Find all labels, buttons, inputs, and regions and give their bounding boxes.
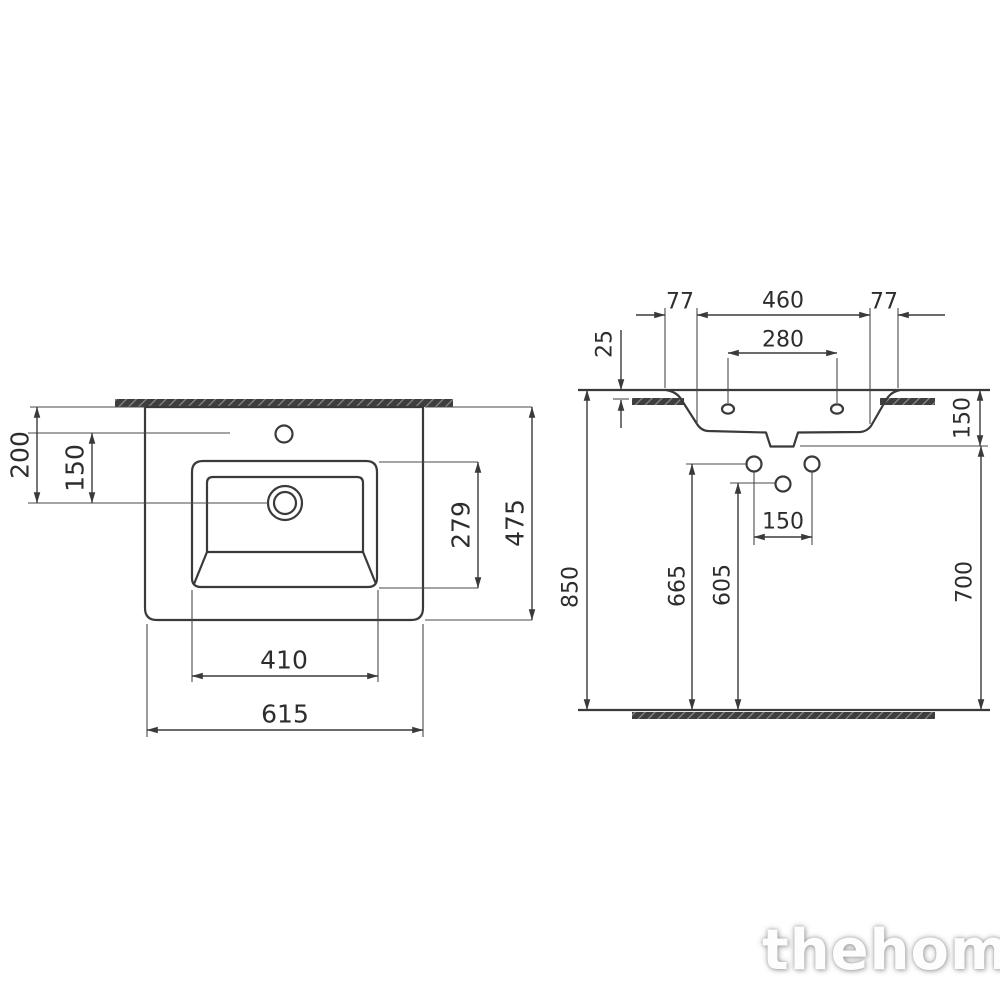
plan-basin-outer (192, 461, 377, 587)
dim-label-850: 850 (559, 566, 584, 608)
front-faucet-hole-left (722, 404, 734, 413)
front-hole-upper-right (805, 457, 820, 472)
dimension-850: 850 (559, 390, 588, 710)
dimension-615: 615 (147, 700, 423, 731)
technical-drawing-page: 200 150 279 475 410 615 (0, 0, 1000, 1000)
dim-label-280: 280 (762, 328, 804, 353)
front-sink-outline (666, 390, 900, 447)
plan-extension-lines (28, 407, 532, 737)
front-floor-hatch-bar (632, 712, 935, 719)
dimension-665: 665 (666, 464, 693, 710)
plan-wall-hatch-bar (115, 399, 453, 407)
dimension-150-plan: 150 (61, 433, 93, 503)
watermark-thehome: thehome (762, 918, 1000, 983)
dimension-410: 410 (192, 646, 378, 677)
dim-label-200: 200 (6, 431, 35, 479)
dim-label-150-side: 150 (951, 397, 976, 439)
dim-label-615: 615 (261, 700, 309, 729)
dimension-280: 280 (728, 328, 837, 354)
dimension-475: 475 (501, 407, 533, 620)
dimension-279: 279 (447, 462, 479, 588)
dim-label-77-left: 77 (666, 290, 694, 315)
dim-label-25: 25 (593, 330, 618, 358)
plan-faucet-hole (276, 426, 293, 443)
dim-label-279: 279 (447, 501, 476, 549)
plan-basin-slope-right (363, 552, 376, 584)
dimension-150-side: 150 (951, 390, 981, 446)
dimension-200: 200 (6, 407, 38, 503)
dimension-605: 605 (711, 483, 739, 710)
front-hole-lower-center (776, 477, 791, 492)
dimension-25: 25 (593, 330, 622, 428)
dim-label-150-holes: 150 (762, 510, 804, 535)
front-view: 77 460 77 280 25 150 150 850 (559, 289, 991, 720)
dimension-top-row: 77 460 77 (636, 289, 945, 316)
front-faucet-hole-right (831, 404, 843, 413)
dim-label-77-right: 77 (870, 290, 898, 315)
front-wall-hatch-right (880, 398, 935, 405)
dim-label-605: 605 (711, 564, 736, 606)
front-hole-upper-left (747, 457, 762, 472)
plan-drain-inner (274, 492, 296, 514)
dim-label-665: 665 (666, 565, 691, 607)
dimension-150-holes: 150 (754, 510, 812, 538)
front-wall-hatch-left (632, 398, 684, 405)
dim-label-700: 700 (953, 561, 978, 603)
dim-label-150-plan: 150 (61, 444, 90, 492)
plan-view: 200 150 279 475 410 615 (6, 399, 533, 737)
dim-label-410: 410 (260, 646, 308, 675)
washbasin-dimension-drawing: 200 150 279 475 410 615 (0, 0, 1000, 1000)
dim-label-475: 475 (501, 499, 530, 547)
dimension-700: 700 (953, 446, 982, 710)
dim-label-460: 460 (762, 289, 804, 314)
plan-basin-slope-left (194, 552, 207, 584)
